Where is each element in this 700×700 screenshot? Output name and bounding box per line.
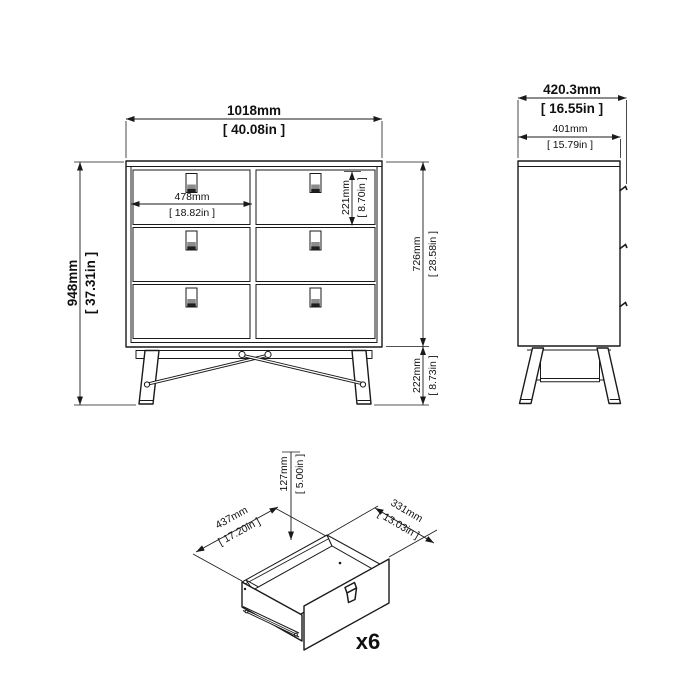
detail-height-dimension: 127mm [ 5.00in ] (278, 452, 306, 540)
stretcher-bar (541, 379, 600, 382)
extension-line (326, 506, 378, 536)
front-drawer-height-in-label: [ 8.70in ] (356, 177, 368, 217)
side-overall-depth-in-label: [ 16.55in ] (541, 101, 603, 116)
side-carcass-depth-dimension: 401mm [ 15.79in ] (519, 123, 621, 158)
drawer-quantity-label: x6 (356, 629, 380, 654)
front-overall-width-mm-label: 1018mm (227, 103, 281, 118)
front-view: 1018mm [ 40.08in ] 948mm [ 37.31in ] 726… (65, 103, 439, 405)
dimensional-drawing-svg: 1018mm [ 40.08in ] 948mm [ 37.31in ] 726… (0, 0, 700, 700)
screw-icon (239, 351, 245, 357)
front-overall-width-dimension: 1018mm [ 40.08in ] (126, 103, 382, 158)
screw-icon (265, 351, 271, 357)
front-leg-height-mm-label: 222mm (411, 358, 423, 393)
drawer-detail-view: 127mm [ 5.00in ] 437mm [ 17.20in ] 331mm… (193, 452, 437, 654)
technical-drawing-canvas: 1018mm [ 40.08in ] 948mm [ 37.31in ] 726… (0, 0, 700, 700)
screw-icon (144, 382, 149, 387)
extension-line (193, 554, 242, 581)
front-leg-height-in-label: [ 8.73in ] (427, 355, 439, 395)
side-view: 420.3mm [ 16.55in ] 401mm [ 15.79in ] (518, 82, 627, 404)
side-carcass-depth-mm-label: 401mm (552, 123, 587, 135)
front-drawer-width-in-label: [ 18.82in ] (169, 207, 215, 219)
detail-height-mm-label: 127mm (278, 456, 290, 491)
front-overall-height-in-label: [ 37.31in ] (83, 252, 98, 314)
screw-hole-icon (244, 588, 246, 590)
front-overall-width-in-label: [ 40.08in ] (223, 122, 285, 137)
side-outline (518, 161, 620, 346)
side-carcass-depth-in-label: [ 15.79in ] (547, 139, 593, 151)
side-body (518, 161, 627, 346)
front-drawer-width-mm-label: 478mm (174, 191, 209, 203)
front-base (136, 351, 372, 405)
front-leg-height-dimension: 222mm [ 8.73in ] (374, 347, 439, 406)
front-drawer-height-mm-label: 221mm (340, 180, 352, 215)
side-overall-depth-mm-label: 420.3mm (543, 82, 601, 97)
front-carcass-height-in-label: [ 28.58in ] (427, 231, 439, 277)
front-overall-height-mm-label: 948mm (65, 260, 80, 307)
screw-hole-icon (339, 562, 342, 565)
front-carcass-height-mm-label: 726mm (411, 236, 423, 271)
screw-icon (360, 382, 365, 387)
stretcher-bars (148, 356, 364, 385)
side-base (520, 348, 621, 404)
detail-height-in-label: [ 5.00in ] (294, 454, 306, 494)
extension-line (275, 508, 326, 536)
front-carcass-height-dimension: 726mm [ 28.58in ] (386, 162, 439, 347)
